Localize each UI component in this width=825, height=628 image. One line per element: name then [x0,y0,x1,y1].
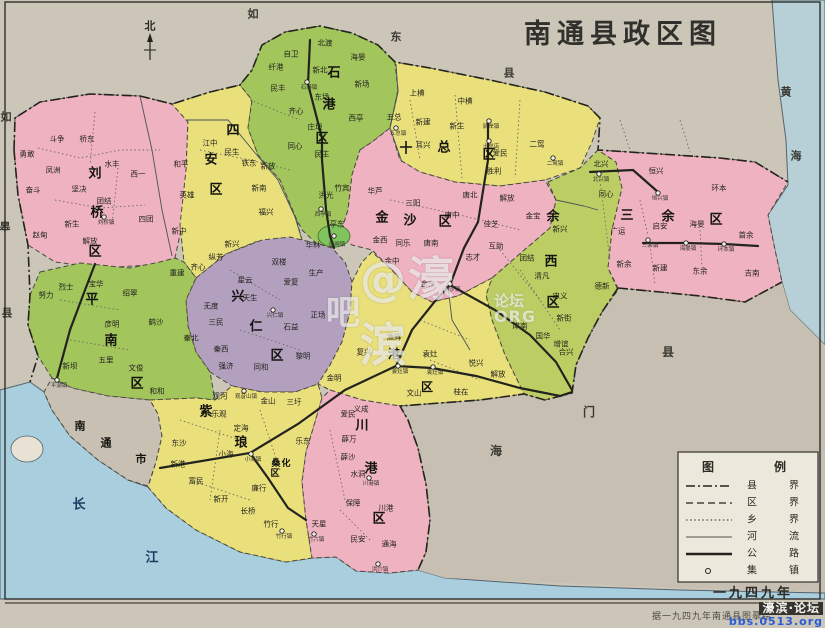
market-town-marker [312,532,316,536]
town-label: 天生 [243,293,258,303]
map-title: 南通县政区图 [524,12,722,51]
neighbor-label: 如 [248,7,259,21]
town-label: 海晏 [351,52,366,62]
market-town-label: 二窎镇 [547,159,564,167]
district-label: 仁 [249,319,262,335]
map-page: 斗争桥东勇敢凤洲水丰西一坚决奋斗团结新生四团赵甸解放刘桥镇刘桥区江中民生和平英雄… [0,0,825,628]
market-town-marker [646,238,650,242]
corner-watermark-url: bbs.0513.org [729,616,823,628]
market-town-marker [394,126,398,130]
town-label: 复兴 [357,347,372,357]
district-label: 总 [437,140,450,156]
town-label: 上横 [410,88,425,98]
town-label: 新放 [261,161,276,171]
town-label: 新坝 [63,361,78,371]
legend-item-label: 河 [747,531,757,543]
town-label: 袁灶 [423,349,438,359]
town-label: 齐心 [289,106,304,116]
market-town-marker [722,242,726,246]
legend-title: 图 [702,460,714,474]
neighbor-label: 东 [391,30,402,44]
market-town-label: 竹六镇 [308,535,325,543]
town-label: 福兴 [259,208,274,217]
town-label: 凤洲 [46,166,61,175]
market-town-marker [242,389,246,393]
town-label: 四团 [139,215,154,224]
map-canvas: 斗争桥东勇敢凤洲水丰西一坚决奋斗团结新生四团赵甸解放刘桥镇刘桥区江中民生和平英雄… [0,0,825,628]
town-label: 英雄 [180,190,195,200]
town-label: 黎明 [296,351,311,361]
town-label: 北兴 [594,160,609,169]
town-label: 西一 [131,170,146,179]
town-label: 通海 [382,539,397,549]
district-label: 平 [85,293,98,308]
market-town-marker [319,207,323,211]
town-label: 赵甸 [33,230,48,240]
town-label: 廉行 [252,483,267,493]
town-label: 富民 [189,476,204,486]
town-label: 宝华 [89,279,104,289]
legend-title: 例 [774,459,786,474]
town-label: 文山 [407,388,422,398]
market-town-label: 西亭镇 [315,210,332,218]
town-label: 新北 [313,65,328,75]
town-label: 绍翠 [123,288,138,298]
market-town-label: 平潮镇 [51,381,68,389]
town-label: 长桥 [241,506,256,516]
town-label: 同心 [288,142,303,151]
market-town-label: 小海镇 [245,455,262,463]
town-label: 首余 [739,230,754,240]
town-label: 二窎 [530,139,545,149]
town-label: 和平 [174,160,189,169]
corner-watermark-title: 濠滨·论坛 [759,602,823,615]
town-label: 勇敢 [20,149,35,159]
town-label: 东沙 [172,438,187,448]
town-label: 义成 [354,404,369,414]
district-label: 区 [130,377,143,392]
town-label: 佳芝 [484,219,499,229]
market-town-label: 骑岸镇 [483,122,500,130]
town-label: 水洞 [351,469,366,479]
town-label: 唐南 [424,238,439,248]
town-label: 石益 [284,322,299,332]
market-town-marker [487,139,491,143]
district-label: 区 [438,215,451,230]
town-label: 胜利 [487,166,502,176]
market-town-marker [487,119,491,123]
neighbor-label: 县 [662,345,674,359]
town-label: 广运 [611,226,626,236]
market-town-label: 北兴镇 [593,175,610,183]
market-town-label: 恒兴镇 [652,194,669,202]
district-label: 兴 [231,289,244,305]
town-label: 同和 [254,363,269,372]
town-label: 海晏 [690,219,705,229]
town-label: 五总 [387,112,402,122]
neighbor-label: 皋 [0,220,12,234]
town-label: 金东 [421,279,436,289]
town-label: 民丰 [271,83,286,93]
legend-item-label: 乡 [747,514,757,526]
town-label: 国华 [536,331,551,341]
legend-item-label: 界 [789,514,799,526]
market-town-label: 观音山镇 [235,392,258,400]
legend-item-label: 界 [789,480,799,492]
town-label: 重建 [170,268,185,278]
town-label: 金宝 [526,211,541,221]
town-label: 团结 [97,196,112,206]
town-label: 奋斗 [26,185,41,195]
town-label: 同心 [599,190,614,199]
market-town-marker [396,364,400,368]
river-island [11,436,43,462]
district-label: 安 [204,152,217,168]
town-label: 保障 [346,498,361,508]
district-label: 化 [281,457,290,469]
legend-item-label: 集 [747,564,757,577]
district-label: 四 [226,124,239,139]
district-label: 石 [326,66,340,81]
district-label: 沙 [403,214,416,229]
town-label: 强济 [219,361,234,371]
town-label: 新兴 [225,239,240,249]
legend-item-label: 流 [789,530,799,543]
district-label: 区 [546,296,559,311]
town-label: 桥东 [80,134,95,144]
town-label: 努力 [39,290,54,300]
town-label: 金山 [261,396,276,406]
legend-item-label: 公 [747,549,757,560]
town-label: 新兴 [553,224,568,234]
market-town-marker [597,172,601,176]
town-label: 华芦 [368,186,383,196]
market-town-label: 袁灶镇 [427,368,444,376]
market-town-marker [431,365,435,369]
town-label: 坚决 [72,184,87,194]
district-label: 三 [620,209,633,224]
town-label: 天星 [312,520,327,529]
town-label: 解放 [500,193,515,203]
town-label: 乐东 [296,436,311,446]
district-label: 市 [136,452,147,466]
legend-item-label: 县 [747,480,757,492]
market-town-marker [448,282,452,286]
market-town-marker [280,529,284,533]
town-label: 渔辉 [387,332,402,342]
town-label: 民安 [351,534,366,544]
market-town-label: 金沙镇 [444,285,461,293]
market-town-marker [249,452,253,456]
market-town-label: 洪介镇 [372,565,389,573]
town-label: 江中 [203,138,218,148]
town-label: 水丰 [105,159,120,169]
town-label: 彦明 [105,319,120,329]
district-label: 川 [354,419,368,434]
town-label: 齐心 [191,262,206,272]
market-town-label: 石港镇 [301,83,318,91]
town-label: 庄垠 [308,122,323,132]
town-label: 鹤沙 [149,317,164,327]
town-label: 悦兴 [469,358,484,368]
district-label: 十 [399,141,412,157]
town-label: 纤港 [269,62,284,72]
town-label: 新余 [617,259,632,269]
neighbor-label: 县 [504,67,515,80]
legend-item-label: 路 [789,547,799,560]
market-town-label: 三余镇 [642,241,659,249]
town-label: 解放 [491,369,506,379]
town-label: 斗争 [50,134,65,144]
legend-item-label: 界 [789,497,799,509]
district-label: 区 [209,183,222,198]
market-town-label: 五总镇 [390,129,407,137]
town-label: 秦北 [184,333,199,343]
town-label: 团结 [520,253,535,263]
town-label: 合兴 [559,347,574,357]
market-town-marker [332,234,336,238]
district-label: 西 [544,255,557,270]
town-label: 唐北 [463,190,478,200]
town-label: 新开 [214,494,229,504]
town-label: 观河 [213,392,228,401]
district-label: 港 [388,346,401,361]
town-label: 新中 [172,226,187,236]
town-label: 星云 [238,276,253,285]
market-town-marker [305,80,309,84]
town-label: 吉南 [745,268,760,278]
town-label: 北渡 [318,38,333,48]
town-label: 民生 [225,147,240,157]
neighbor-label: 江 [145,550,158,566]
town-label: 生产 [309,268,324,278]
neighbor-label: 门 [583,404,595,419]
legend-item-label: 区 [747,497,757,509]
district-label: 通 [101,437,112,450]
town-label: 无度 [204,301,219,311]
town-label: 西亭 [349,113,364,123]
town-label: 双楼 [272,257,287,267]
district-label: 南 [104,333,117,349]
town-label: 新街 [557,313,572,323]
market-town-marker [656,191,660,195]
town-label: 爱复 [284,277,299,287]
market-town-label: 兴仁镇 [267,311,284,319]
town-label: 新建 [653,263,668,273]
town-label: 耳兴 [416,141,431,150]
district-label: 南 [75,419,86,433]
market-town-label: 唐闸镇 [329,240,346,248]
district-label: 港 [322,97,336,113]
district-label: 余 [545,209,560,225]
market-town-label: 竹行镇 [276,532,293,540]
town-label: 三阳 [406,199,421,208]
district-label: 金 [374,210,389,226]
town-label: 烈士 [59,282,74,292]
neighbor-label: 县 [2,307,13,320]
district-label: 琅 [234,435,248,451]
town-label: 秦西 [214,344,229,354]
district-label: 区 [482,148,495,163]
market-town-label: 姜灶镇 [392,367,409,375]
town-label: 竹行 [264,519,279,529]
town-label: 三民 [209,318,224,327]
town-label: 和和 [150,387,165,396]
town-label: 薛沙 [341,452,356,462]
neighbor-label: 海 [791,149,802,163]
town-label: 新场 [355,79,370,89]
town-label: 薛万 [342,434,357,444]
town-label: 新港 [171,459,186,469]
town-label: 华林 [306,240,321,250]
town-label: 定海 [234,423,249,433]
district-label: 区 [709,213,722,228]
district-label: 余 [660,209,675,225]
market-town-marker [684,241,688,245]
market-town-label: 川港镇 [363,479,380,487]
town-label: 清凡 [535,271,550,281]
neighbor-label: 黄 [781,85,792,99]
town-label: 纵芳 [209,252,224,262]
town-label: 岸南 [513,321,528,331]
district-label: 紫 [199,404,212,420]
market-town-marker [551,156,555,160]
town-label: 新南 [252,183,267,193]
neighbor-label: 海 [490,443,502,458]
town-label: 亭东 [330,219,345,229]
town-label: 恒兴 [649,166,664,176]
town-label: 中横 [458,96,473,106]
district-label: 区 [372,512,385,527]
town-label: 乐观 [212,409,227,419]
market-town-marker [271,308,275,312]
town-label: 铁东 [242,158,257,168]
district-label: 区 [270,468,279,479]
town-label: 金明 [327,373,342,383]
town-label: 竹宾 [335,183,350,193]
district-label: 区 [315,132,328,147]
town-label: 同乐 [396,238,411,248]
market-town-label: 海晏镇 [680,244,697,252]
town-label: 五里 [99,356,114,365]
town-label: 小海 [219,449,234,459]
town-label: 互助 [489,241,504,251]
legend-item-label: 镇 [789,564,799,577]
district-label: 港 [364,461,378,477]
market-town-marker [376,562,380,566]
town-label: 民主 [315,149,330,159]
district-label: 桑 [270,458,281,469]
town-label: 桂在 [454,387,469,397]
town-label: 三圩 [287,398,302,407]
town-label: 新生 [65,219,80,229]
town-label: 文俊 [129,363,144,373]
district-label: 区 [270,349,283,364]
market-town-marker [55,378,59,382]
town-label: 洪光 [319,190,334,200]
town-label: 环本 [712,183,727,193]
town-label: 新生 [450,121,465,131]
district-label: 刘 [88,166,101,182]
neighbor-label: 长 [72,497,86,513]
district-label: 桥 [90,205,104,221]
corner-watermark: 濠滨·论坛 bbs.0513.org [729,599,823,627]
town-label: 志才 [466,252,481,262]
market-town-label: 环本镇 [718,245,735,253]
town-label: 新建 [416,117,431,127]
town-label: 东余 [693,266,708,276]
town-label: 德新 [595,281,610,291]
district-label: 区 [421,380,433,394]
town-label: 自卫 [284,49,299,59]
town-label: 金中 [385,256,400,266]
town-label: 金西 [373,235,388,245]
neighbor-label: 如 [1,110,12,124]
district-label: 区 [88,245,101,260]
compass-north-label: 北 [145,19,156,33]
town-label: 正场 [311,311,326,320]
